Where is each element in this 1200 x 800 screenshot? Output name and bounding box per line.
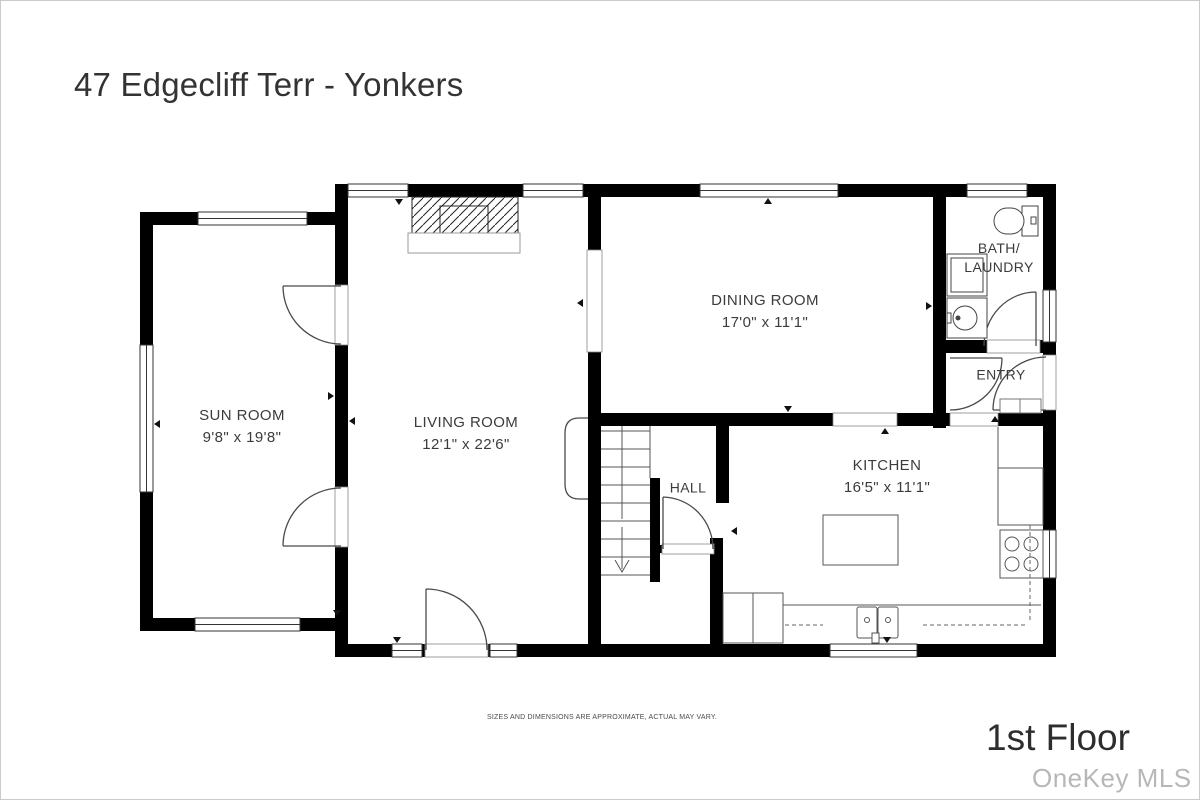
wall-bath-left — [933, 197, 946, 428]
fireplace-hearth — [408, 233, 520, 253]
window — [490, 644, 517, 657]
arrow-marker — [393, 637, 401, 643]
door-sunroom-2 — [283, 488, 341, 546]
floorplan-drawing — [0, 0, 1200, 800]
staircase — [601, 426, 650, 575]
window — [198, 212, 307, 225]
room-name: SUN ROOM — [199, 405, 285, 427]
fireplace — [408, 197, 520, 253]
doors — [283, 286, 1046, 650]
room-name: LIVING ROOM — [414, 412, 518, 434]
opening-living-room-door — [425, 644, 488, 657]
arrow-marker — [764, 198, 772, 204]
room-label-hall: HALL — [670, 479, 707, 498]
room-label-entry: ENTRY — [976, 366, 1025, 385]
opening-front-door — [1043, 355, 1056, 410]
opening-sunroom-door-1 — [335, 285, 348, 345]
opening-hall-door — [662, 544, 714, 554]
fridge — [998, 468, 1043, 525]
kitchen-island — [823, 515, 898, 565]
room-name: HALL — [670, 479, 707, 498]
door-living-room — [426, 589, 487, 650]
room-name: KITCHEN — [844, 455, 930, 477]
window — [392, 644, 422, 657]
room-dims: 9'8" x 19'8" — [199, 427, 285, 449]
room-name: DINING ROOM — [711, 290, 819, 312]
room-dims: 17'0" x 11'1" — [711, 312, 819, 334]
window — [967, 184, 1027, 197]
room-name: BATH/ — [964, 239, 1033, 258]
stair-curved-wall — [565, 418, 592, 499]
arrow-marker — [731, 527, 737, 535]
floorplan-page: 47 Edgecliff Terr - Yonkers — [0, 0, 1200, 800]
room-name: ENTRY — [976, 366, 1025, 385]
disclaimer-text: SIZES AND DIMENSIONS ARE APPROXIMATE, AC… — [487, 714, 717, 721]
room-name: LAUNDRY — [964, 258, 1033, 277]
arrow-marker — [881, 428, 889, 434]
arrow-marker — [883, 637, 891, 643]
room-label-sun-room: SUN ROOM 9'8" x 19'8" — [199, 405, 285, 449]
window — [700, 184, 838, 197]
window — [348, 184, 408, 197]
arrow-marker — [577, 299, 583, 307]
kitchen-fixtures — [723, 399, 1043, 643]
toilet — [994, 206, 1038, 236]
stair-treads — [601, 431, 650, 575]
door-sunroom-1 — [283, 286, 341, 344]
wall-stair-stub — [650, 478, 660, 582]
window — [523, 184, 583, 197]
arrow-marker — [328, 392, 334, 400]
window — [1043, 530, 1056, 578]
arrow-marker — [784, 406, 792, 412]
opening-entry-kitchen — [950, 413, 998, 426]
opening-living-dining — [587, 250, 602, 352]
wall-sunroom-living-divider — [335, 184, 348, 657]
arrow-marker — [154, 420, 160, 428]
entry-closet — [1000, 399, 1041, 413]
opening-sunroom-door-2 — [335, 487, 348, 547]
window — [1043, 290, 1056, 342]
floor-label: 1st Floor — [986, 717, 1130, 759]
stair-down-arrow — [615, 527, 629, 572]
room-label-kitchen: KITCHEN 16'5" x 11'1" — [844, 455, 930, 499]
fireplace-box — [412, 197, 518, 233]
mls-watermark: OneKey MLS — [1032, 763, 1192, 794]
wall-hall-right-upper — [716, 413, 729, 503]
room-dims: 12'1" x 22'6" — [414, 434, 518, 456]
window — [830, 644, 917, 657]
cabinet-left — [723, 593, 783, 643]
opening-bath-door — [987, 340, 1040, 353]
upper-cabinet-dashed-lines — [785, 525, 1030, 625]
room-label-dining-room: DINING ROOM 17'0" x 11'1" — [711, 290, 819, 334]
room-dims: 16'5" x 11'1" — [844, 477, 930, 499]
room-label-living-room: LIVING ROOM 12'1" x 22'6" — [414, 412, 518, 456]
opening-dining-kitchen — [833, 413, 897, 426]
arrow-marker — [395, 199, 403, 205]
window — [195, 618, 300, 631]
kitchen-sink — [857, 607, 898, 643]
arrow-marker — [349, 417, 355, 425]
room-label-bath-laundry: BATH/ LAUNDRY — [964, 239, 1033, 277]
window — [140, 345, 153, 492]
wall-top-main — [335, 184, 1056, 197]
door-bath — [984, 292, 1036, 346]
stove — [1000, 530, 1043, 578]
door-hall — [663, 497, 713, 549]
arrow-marker — [926, 302, 932, 310]
bath-sink — [947, 298, 987, 338]
